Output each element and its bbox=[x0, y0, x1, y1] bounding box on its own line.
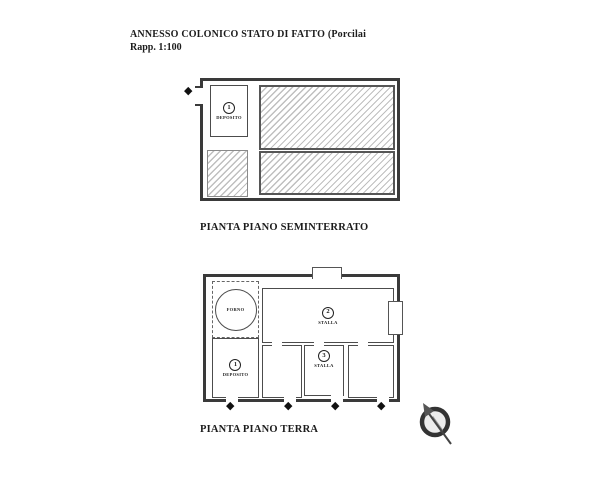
entrance-arrow-icon: ◆ bbox=[377, 401, 385, 412]
room-label: 3 STALLA bbox=[314, 350, 333, 368]
entrance-arrow-icon: ◆ bbox=[284, 401, 292, 412]
room-label: 2 STALLA bbox=[318, 307, 337, 325]
door-opening bbox=[272, 337, 282, 348]
room-deposito-terra: 1 DEPOSITO bbox=[212, 338, 259, 398]
title-block: ANNESSO COLONICO STATO DI FATTO (Porcila… bbox=[130, 28, 366, 54]
hatched-area-bottom-right bbox=[259, 151, 395, 195]
room-number: 1 bbox=[223, 102, 235, 114]
room-name: DEPOSITO bbox=[216, 115, 242, 120]
room-number: 2 bbox=[322, 307, 334, 319]
room-name: STALLA bbox=[318, 320, 337, 325]
entrance-arrow-icon: ◆ bbox=[226, 401, 234, 412]
drawing-scale: Rapp. 1:100 bbox=[130, 41, 366, 54]
plan-seminterrato: 1 DEPOSITO bbox=[200, 78, 400, 201]
room-stalla-grande: 2 STALLA bbox=[262, 288, 394, 343]
door-opening bbox=[200, 88, 203, 104]
room-name: FORNO bbox=[227, 307, 245, 312]
hatched-area-bottom-left bbox=[207, 150, 248, 197]
drawing-sheet: ANNESSO COLONICO STATO DI FATTO (Porcila… bbox=[0, 0, 600, 480]
caption-seminterrato: PIANTA PIANO SEMINTERRATO bbox=[200, 222, 368, 233]
door-opening bbox=[358, 337, 368, 348]
door-jamb bbox=[195, 104, 201, 106]
hatched-area-top-right bbox=[259, 85, 395, 150]
caption-piano-terra: PIANTA PIANO TERRA bbox=[200, 424, 318, 435]
door-jamb bbox=[195, 86, 201, 88]
room-label: 1 DEPOSITO bbox=[216, 102, 242, 120]
wall-niche bbox=[312, 267, 342, 279]
room-number: 3 bbox=[318, 350, 330, 362]
room-number: 1 bbox=[229, 359, 241, 371]
forno-enclosure: FORNO bbox=[212, 281, 259, 338]
entrance-arrow-icon: ◆ bbox=[184, 86, 192, 97]
right-wall-recess bbox=[388, 301, 403, 335]
drawing-title: ANNESSO COLONICO STATO DI FATTO (Porcila… bbox=[130, 28, 366, 41]
plan-piano-terra: FORNO 1 DEPOSITO 2 STALLA 3 STALLA bbox=[203, 274, 400, 402]
room-label: 1 DEPOSITO bbox=[223, 359, 249, 377]
room-bottom-right bbox=[348, 345, 394, 398]
forno-circle: FORNO bbox=[215, 289, 257, 331]
door-opening bbox=[314, 337, 324, 348]
entrance-arrow-icon: ◆ bbox=[331, 401, 339, 412]
room-bottom-left bbox=[262, 345, 302, 398]
north-arrow-icon bbox=[417, 400, 457, 448]
room-stalla-piccola: 3 STALLA bbox=[304, 345, 344, 396]
room-name: DEPOSITO bbox=[223, 372, 249, 377]
room-deposito-seminterrato: 1 DEPOSITO bbox=[210, 85, 248, 137]
room-name: STALLA bbox=[314, 363, 333, 368]
